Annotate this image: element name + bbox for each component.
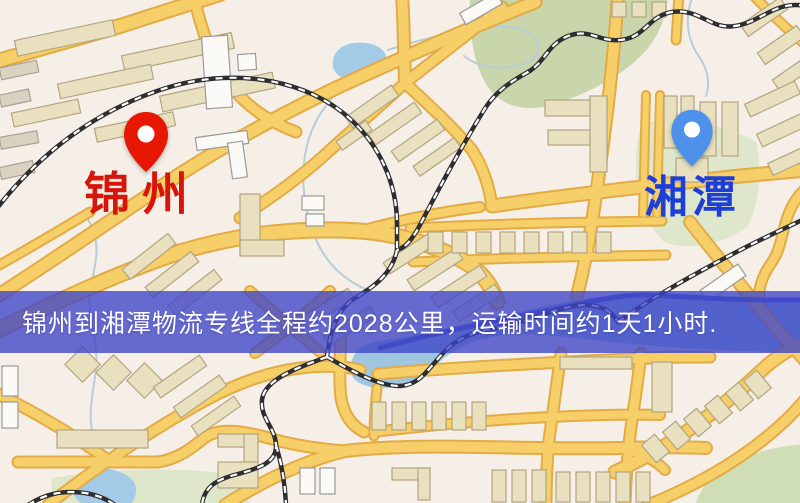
destination-pin-icon[interactable] <box>669 108 715 168</box>
map-image[interactable]: 锦州 湘潭 锦州到湘潭物流专线全程约2028公里，运输时间约1天1小时. <box>0 0 800 503</box>
destination-label: 湘潭 <box>644 176 740 220</box>
route-info-text: 锦州到湘潭物流专线全程约2028公里，运输时间约1天1小时. <box>0 304 717 340</box>
origin-label: 锦州 <box>84 172 200 218</box>
map-canvas <box>0 0 800 503</box>
route-info-banner: 锦州到湘潭物流专线全程约2028公里，运输时间约1天1小时. <box>0 291 800 353</box>
origin-pin-icon[interactable] <box>121 110 171 174</box>
